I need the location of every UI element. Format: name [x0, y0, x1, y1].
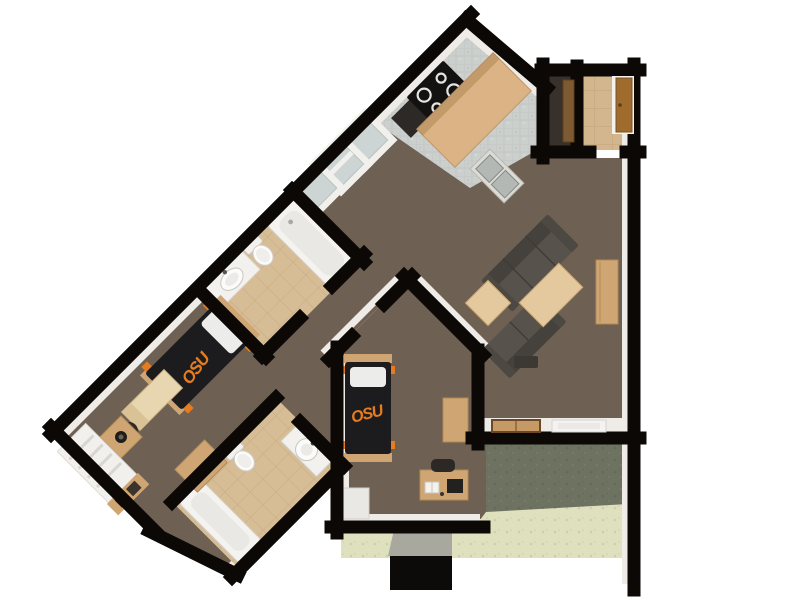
tv-stand	[596, 260, 618, 324]
desk-chair	[431, 459, 455, 472]
white-window-inner	[558, 423, 600, 429]
bed-footboard	[344, 453, 392, 462]
osu-bed-2: OSU	[341, 354, 395, 462]
floorplan-page: OSU	[0, 0, 800, 600]
wall-unit	[514, 356, 538, 368]
mouse	[440, 492, 444, 496]
bed-pillow	[350, 367, 386, 387]
laptop	[447, 479, 463, 493]
bed-headboard	[344, 354, 392, 363]
apartment-floorplan: OSU	[0, 0, 800, 600]
wardrobe	[443, 398, 468, 442]
door-knob	[618, 103, 622, 107]
patio-stoop	[390, 556, 452, 590]
closet-door-panel	[563, 80, 574, 142]
